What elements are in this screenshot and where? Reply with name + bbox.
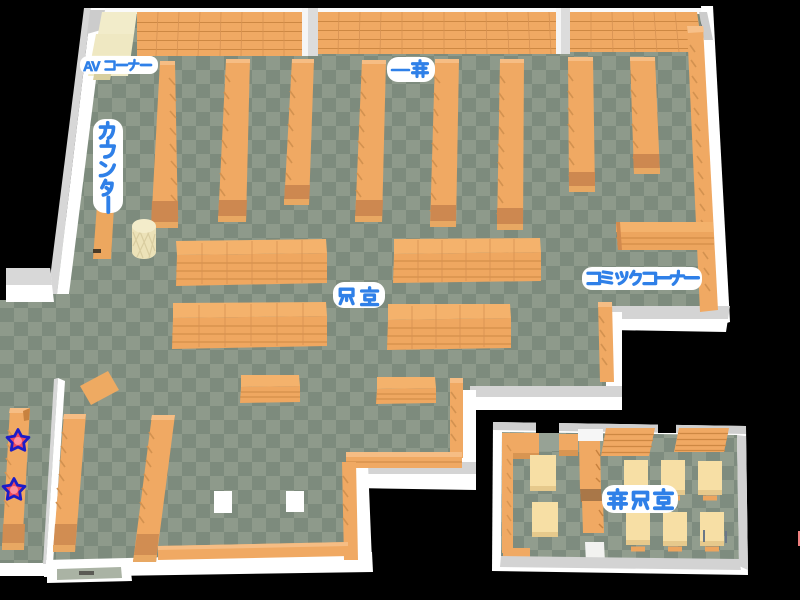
svg-text:AV: AV [83, 58, 101, 74]
